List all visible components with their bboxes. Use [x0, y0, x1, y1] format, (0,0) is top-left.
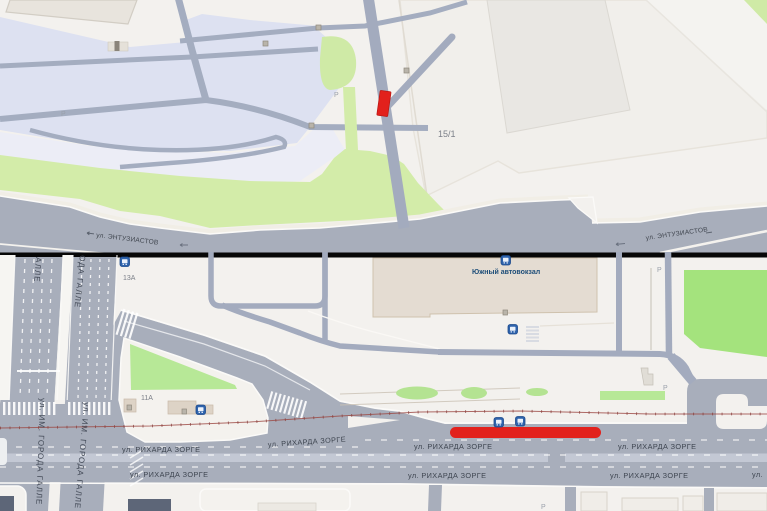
- svg-text:Р: Р: [657, 267, 662, 274]
- svg-text:13А: 13А: [123, 275, 136, 282]
- svg-text:ул. РИХАРДА ЗОРГЕ: ул. РИХАРДА ЗОРГЕ: [414, 442, 492, 451]
- svg-text:Р: Р: [61, 111, 66, 118]
- svg-text:Южный автовокзал: Южный автовокзал: [472, 268, 540, 276]
- svg-text:Р: Р: [541, 504, 546, 511]
- svg-text:Р: Р: [334, 92, 339, 99]
- svg-text:ул. РИХАРДА ЗОРГЕ: ул. РИХАРДА ЗОРГЕ: [618, 442, 696, 451]
- svg-text:АЛЛЕ: АЛЛЕ: [32, 257, 43, 283]
- svg-text:Р: Р: [663, 385, 668, 392]
- svg-text:ул. РИХАРДА ЗОРГЕ: ул. РИХАРДА ЗОРГЕ: [610, 471, 688, 480]
- svg-text:ул. РИХАРДА ЗОРГЕ: ул. РИХАРДА ЗОРГЕ: [408, 471, 486, 480]
- svg-text:15/1: 15/1: [438, 129, 456, 139]
- svg-text:ул. РИХАРДА ЗОРГЕ: ул. РИХАРДА ЗОРГЕ: [122, 445, 200, 454]
- svg-text:ул.: ул.: [752, 470, 763, 479]
- svg-text:11А: 11А: [141, 395, 153, 402]
- svg-text:ул. РИХАРДА ЗОРГЕ: ул. РИХАРДА ЗОРГЕ: [130, 470, 208, 479]
